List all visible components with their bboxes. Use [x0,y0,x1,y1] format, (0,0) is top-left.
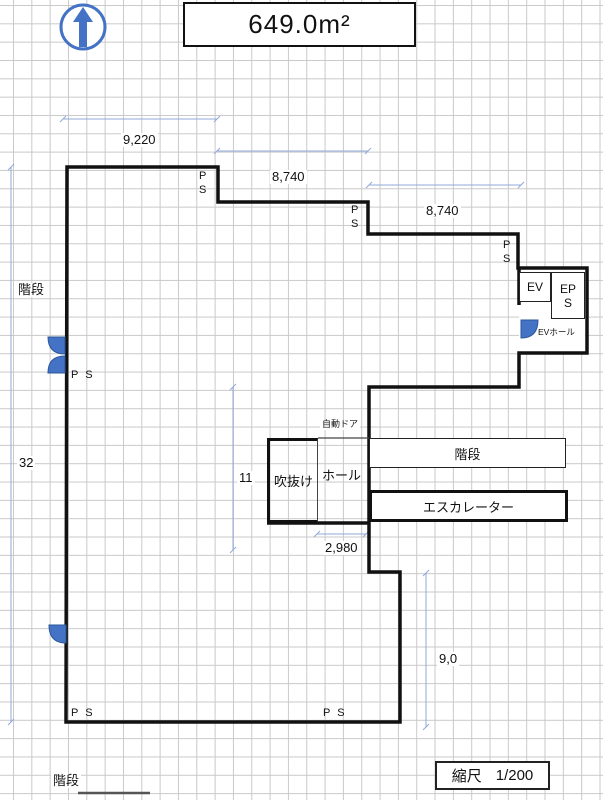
ev-hall-label: EVホール [538,328,575,337]
room-label: エスカレーター [423,497,514,516]
floorplan-canvas: 649.0m² 縮尺 1/200 階段 エスカレーター 吹抜け EV EP S … [0,0,603,800]
automatic-door-label: 自動ドア [320,420,360,430]
room-elevator: EV [519,272,551,302]
room-label: S [564,296,572,310]
ps-p: P [351,203,358,217]
floor-area-box: 649.0m² [183,2,416,47]
ps-s: S [351,217,358,231]
dimension-left-height: 32 [17,456,35,470]
ps-p: P [503,238,510,252]
room-label: EP [560,282,576,296]
double-door-icon [48,356,65,373]
stairs-upper-left-label: 階段 [16,283,46,297]
ps-shaft-label: P S [351,203,358,231]
dimension-hall-width: 2,980 [323,541,360,555]
dimension-top-right: 8,740 [424,204,461,218]
dimension-top-left: 9,220 [121,133,158,147]
ps-shaft-label: P S [503,238,510,266]
room-eps: EP S [551,272,585,319]
room-label: EV [527,280,543,294]
room-escalator: エスカレーター [369,490,568,522]
scale-value: 1/200 [496,767,534,784]
scale-label: 縮尺 [452,765,482,786]
room-label: 階段 [454,444,480,463]
ps-shaft-label: P S [323,707,347,719]
scale-box: 縮尺 1/200 [435,761,550,790]
ps-s: S [503,252,510,266]
floorplan-drawing [0,0,603,800]
room-atrium: 吹抜け [267,438,318,523]
north-arrow-icon [61,5,105,49]
dimension-atrium-height: 11 [237,471,255,485]
floor-area-label: 649.0m² [248,9,350,40]
stairs-bottom-label: 階段 [51,774,81,788]
dimension-top-middle: 8,740 [270,170,307,184]
single-door-icon [49,625,66,643]
ps-shaft-label: P S [199,169,206,197]
ps-p: P [199,169,206,183]
ps-shaft-label: P S [71,369,95,381]
double-door-icon [48,337,65,354]
dimension-right-height: 9,0 [437,652,459,666]
ps-s: S [199,183,206,197]
room-label: 吹抜け [274,471,313,490]
ps-shaft-label: P S [71,707,95,719]
room-stairs-right: 階段 [369,438,566,468]
room-hall-label: ホール [322,469,361,483]
